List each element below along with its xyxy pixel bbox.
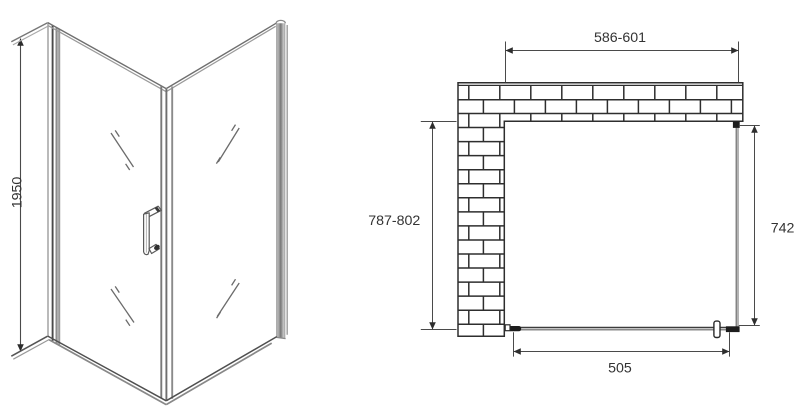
svg-text:1950: 1950: [10, 177, 26, 209]
svg-text:742: 742: [771, 220, 795, 236]
svg-text:505: 505: [608, 360, 632, 376]
svg-text:586-601: 586-601: [594, 30, 646, 46]
svg-text:787-802: 787-802: [368, 213, 420, 229]
